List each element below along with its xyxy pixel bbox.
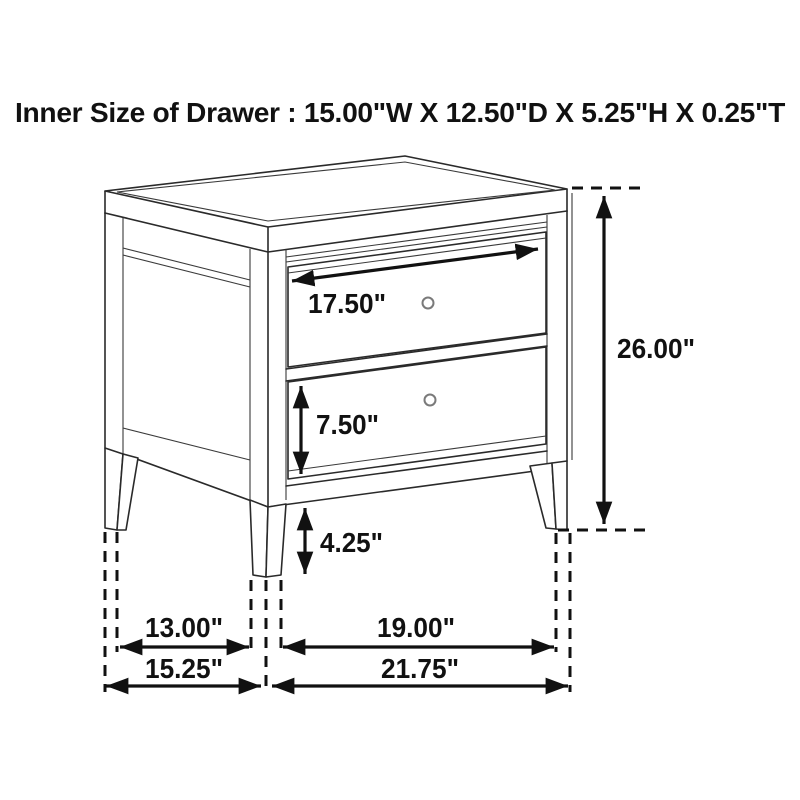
bottom-drawer-knob	[425, 395, 436, 406]
label-overall-height: 26.00"	[617, 333, 695, 364]
panel-recess-bottom	[123, 428, 250, 460]
nightstand-dimension-drawing: Inner Size of Drawer : 15.00"W X 12.50"D…	[0, 0, 800, 800]
label-side-leg-span-inner: 13.00"	[145, 612, 223, 643]
dimension-diagram: Inner Size of Drawer : 15.00"W X 12.50"D…	[0, 0, 800, 800]
top-surface	[105, 156, 567, 227]
panel-recess-top	[123, 248, 250, 280]
label-overall-depth: 15.25"	[145, 653, 223, 684]
diagram-title: Inner Size of Drawer : 15.00"W X 12.50"D…	[15, 97, 785, 128]
label-lower-drawer-height: 7.50"	[316, 409, 379, 440]
front-face	[268, 193, 572, 507]
top-drawer-knob	[423, 298, 434, 309]
front-left-leg	[266, 504, 286, 577]
front-left-leg-side-face	[250, 500, 268, 577]
dimension-overall-height: 26.00"	[604, 196, 695, 524]
label-drawer-front-width: 17.50"	[308, 288, 386, 319]
dimension-floor-clearance: 4.25"	[305, 508, 383, 574]
left-bottom-rail-edge	[123, 454, 268, 507]
dimension-overall-depth: 15.25"	[106, 653, 261, 686]
dimension-overall-width: 21.75"	[272, 653, 568, 686]
dimension-front-leg-span-inner: 19.00"	[283, 612, 554, 647]
cabinet-top	[105, 156, 567, 252]
label-front-leg-span-inner: 19.00"	[377, 612, 455, 643]
label-overall-width: 21.75"	[381, 653, 459, 684]
label-floor-clearance: 4.25"	[320, 527, 383, 558]
dimension-side-leg-span-inner: 13.00"	[120, 612, 249, 647]
